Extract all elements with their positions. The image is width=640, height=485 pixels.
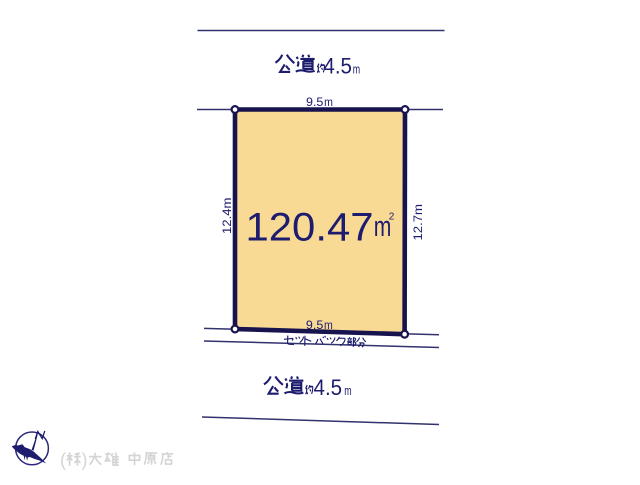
svg-text:m: m [353,61,360,76]
svg-text:120.47: 120.47 [246,206,374,250]
svg-text:4.5: 4.5 [314,375,343,400]
svg-text:): ) [82,450,88,470]
svg-text:12.7m: 12.7m [413,204,425,241]
svg-text:9.5: 9.5 [306,97,323,109]
svg-text:9.5: 9.5 [306,320,323,332]
svg-text:m: m [324,320,333,332]
svg-text:12.4m: 12.4m [222,198,234,235]
svg-text:m: m [324,97,333,109]
svg-text:m: m [344,383,351,398]
svg-text:4.5: 4.5 [323,53,352,78]
svg-text:2: 2 [389,212,395,223]
svg-text:(: ( [60,450,66,470]
